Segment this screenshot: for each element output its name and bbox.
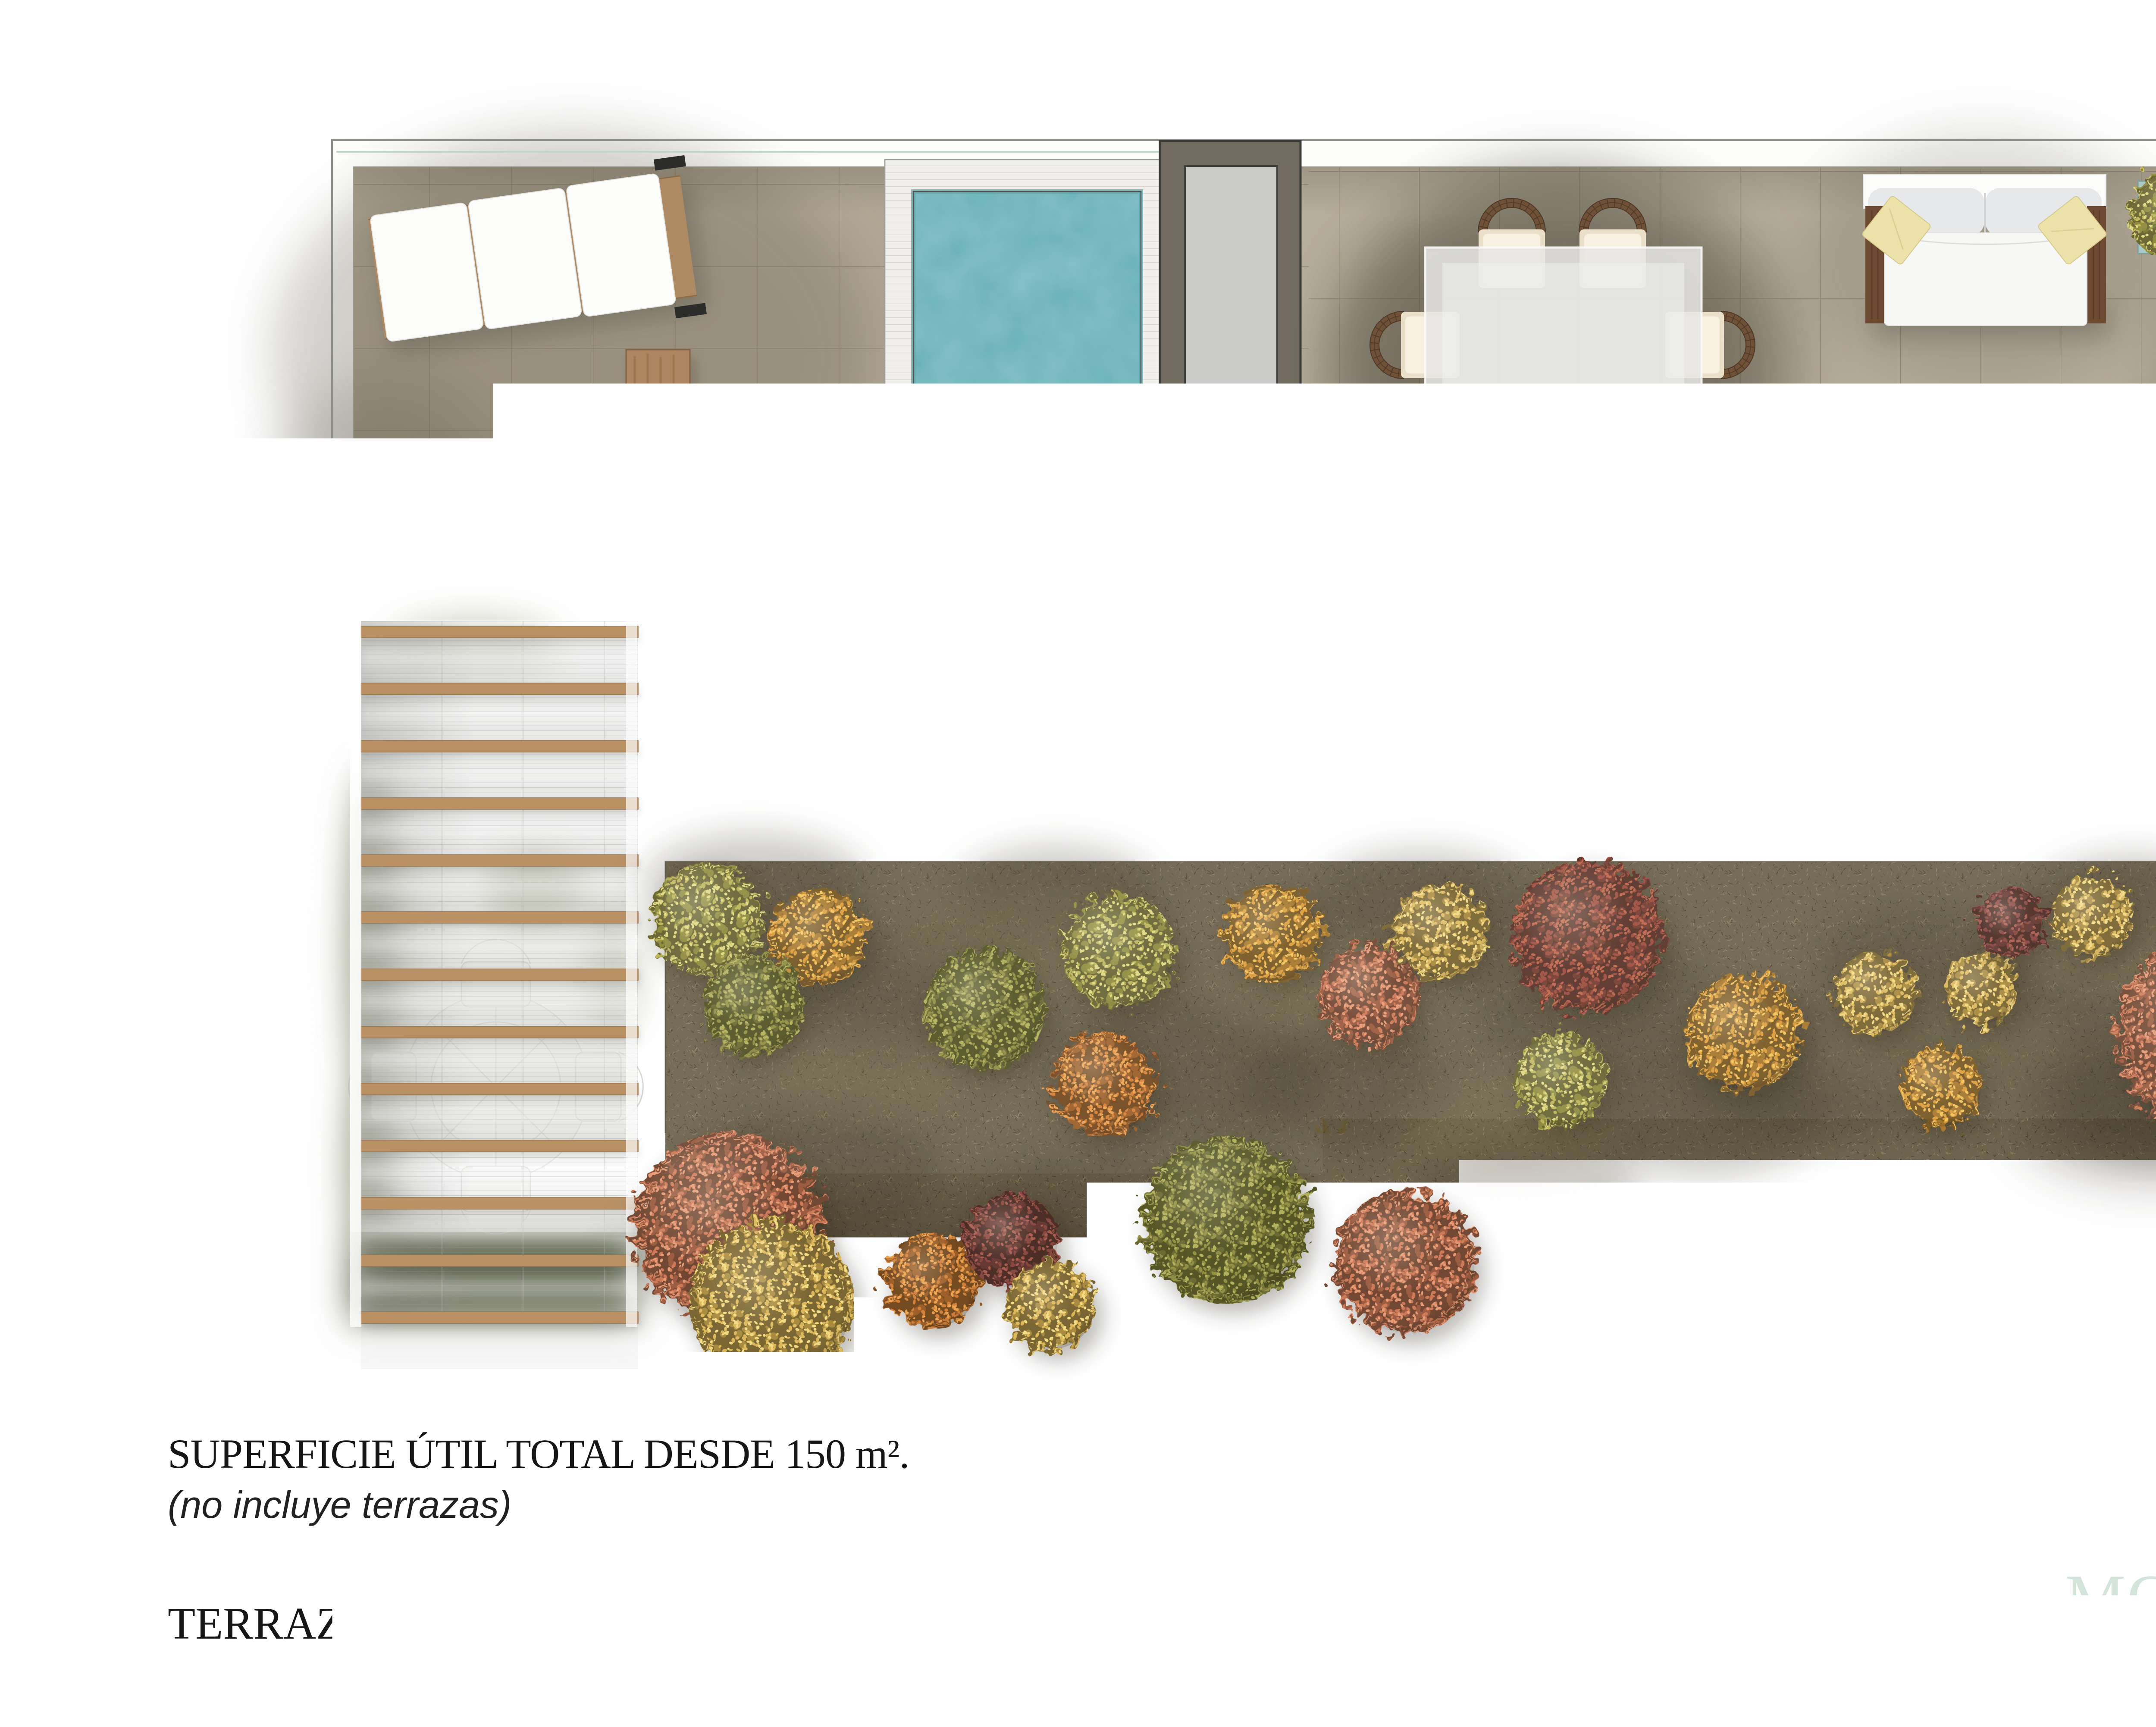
svg-text:SUPERFICIE ÚTIL TOTAL DESDE 15: SUPERFICIE ÚTIL TOTAL DESDE 150 m². [168,1431,909,1477]
svg-text:TERRAZA: 48 m²: TERRAZA: 48 m² [168,1598,506,1649]
svg-text:MODELO B: MODELO B [2065,1561,2156,1636]
svg-text:(no incluye terrazas): (no incluye terrazas) [168,1483,511,1526]
